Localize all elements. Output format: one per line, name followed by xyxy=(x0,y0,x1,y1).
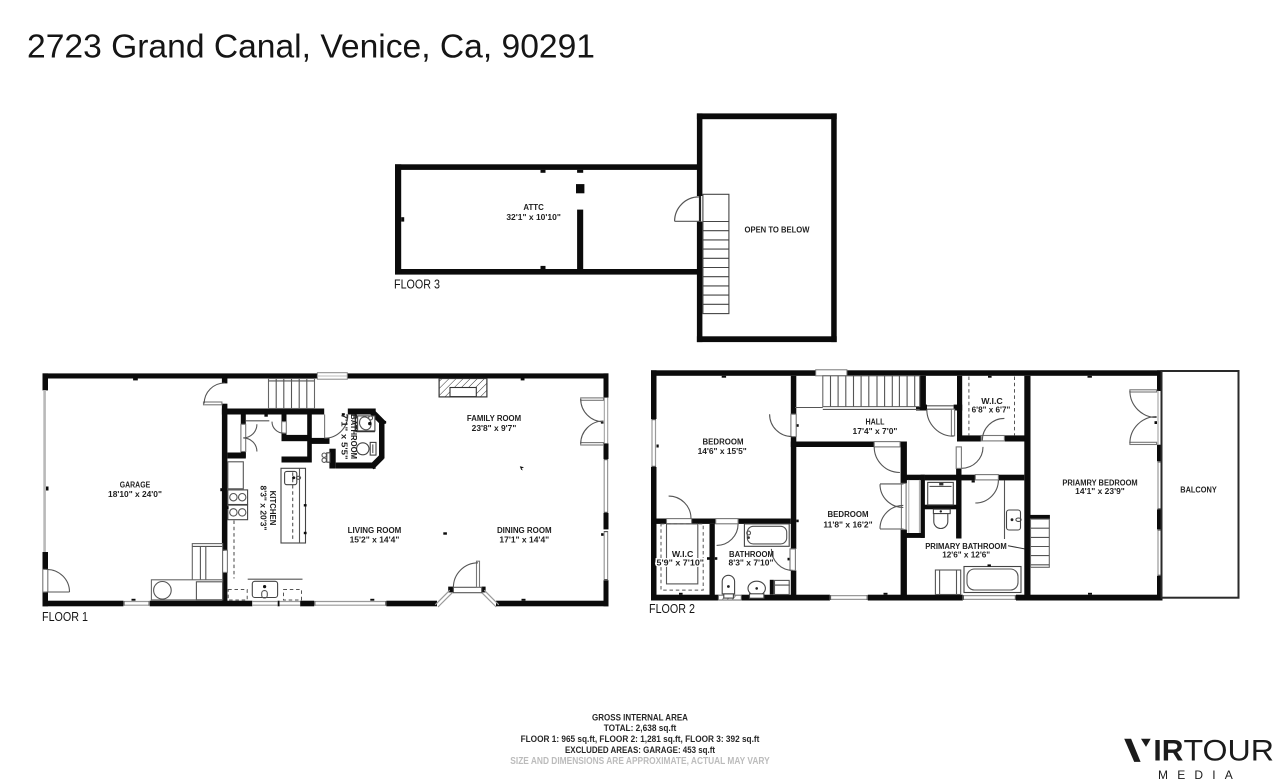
svg-text:KITCHEN: KITCHEN xyxy=(268,491,278,526)
svg-text:8'3" x 20'3": 8'3" x 20'3" xyxy=(258,486,268,531)
svg-text:MEDIA: MEDIA xyxy=(1158,768,1242,782)
svg-text:BATHROOM: BATHROOM xyxy=(349,414,359,459)
svg-text:BEDROOM: BEDROOM xyxy=(828,509,869,519)
svg-text:FLOOR 3: FLOOR 3 xyxy=(394,277,440,292)
svg-text:IR: IR xyxy=(1153,735,1183,768)
svg-text:14'6" x 15'5": 14'6" x 15'5" xyxy=(698,446,747,456)
svg-text:BALCONY: BALCONY xyxy=(1180,485,1217,495)
svg-text:17'4" x 7'0": 17'4" x 7'0" xyxy=(853,426,898,436)
svg-text:2723 Grand Canal, Venice, Ca,: 2723 Grand Canal, Venice, Ca, 90291 xyxy=(27,29,595,66)
svg-text:SIZE AND DIMENSIONS ARE APPROX: SIZE AND DIMENSIONS ARE APPROXIMATE, ACT… xyxy=(510,756,769,767)
svg-text:12'6" x 12'6": 12'6" x 12'6" xyxy=(942,549,990,559)
svg-text:6'8" x 6'7": 6'8" x 6'7" xyxy=(972,404,1011,414)
svg-text:EXCLUDED AREAS: GARAGE: 453 sq: EXCLUDED AREAS: GARAGE: 453 sq.ft xyxy=(565,745,716,756)
svg-text:FAMILY ROOM: FAMILY ROOM xyxy=(467,413,521,423)
svg-text:TOUR: TOUR xyxy=(1184,735,1275,768)
svg-text:14'1" x 23'9": 14'1" x 23'9" xyxy=(1075,486,1125,496)
svg-text:FLOOR 2: FLOOR 2 xyxy=(649,601,695,616)
svg-text:8'3" x 7'10": 8'3" x 7'10" xyxy=(729,557,774,567)
svg-text:7'1" x 5'5": 7'1" x 5'5" xyxy=(340,414,350,460)
svg-text:ATTC: ATTC xyxy=(523,202,544,212)
svg-text:GROSS INTERNAL AREA: GROSS INTERNAL AREA xyxy=(592,712,688,723)
svg-text:FLOOR 1: FLOOR 1 xyxy=(42,609,88,624)
svg-text:32'1" x 10'10": 32'1" x 10'10" xyxy=(506,212,561,222)
svg-text:17'1" x 14'4": 17'1" x 14'4" xyxy=(499,534,549,544)
svg-text:18'10" x 24'0": 18'10" x 24'0" xyxy=(108,489,162,499)
svg-text:11'8" x 16'2": 11'8" x 16'2" xyxy=(823,519,872,529)
svg-text:5'9" x 7'10": 5'9" x 7'10" xyxy=(657,557,705,567)
svg-text:TOTAL: 2,638 sq.ft: TOTAL: 2,638 sq.ft xyxy=(604,723,677,734)
svg-text:15'2" x 14'4": 15'2" x 14'4" xyxy=(350,534,400,544)
svg-text:23'8" x 9'7": 23'8" x 9'7" xyxy=(472,423,517,433)
svg-text:OPEN TO BELOW: OPEN TO BELOW xyxy=(745,225,811,235)
svg-text:FLOOR 1: 965 sq.ft, FLOOR 2: 1: FLOOR 1: 965 sq.ft, FLOOR 2: 1,281 sq.ft… xyxy=(521,734,760,745)
